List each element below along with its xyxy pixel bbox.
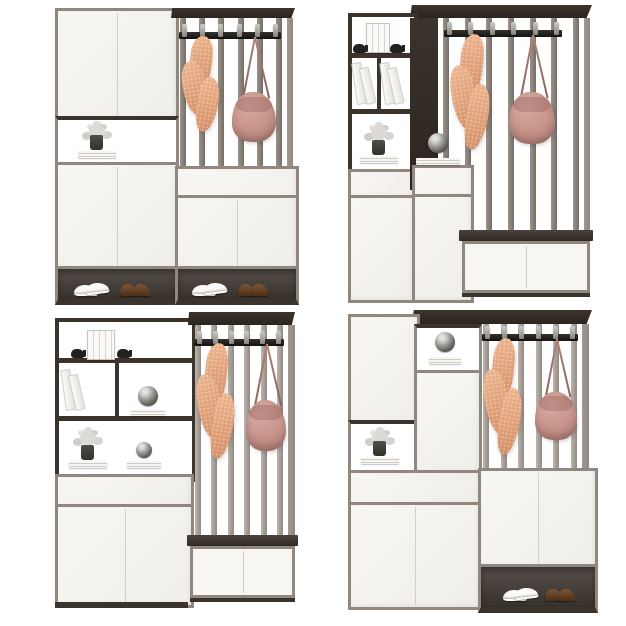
left-tall-door	[348, 195, 416, 303]
book-stack	[127, 461, 161, 468]
bag-flap	[249, 405, 282, 420]
open-shoe-shelf	[175, 266, 299, 305]
door-seam	[526, 246, 527, 288]
rack-side-frame	[584, 18, 590, 230]
flower-vase	[76, 116, 118, 158]
hanging-coat	[183, 36, 223, 134]
right-two-door-cabinet	[478, 468, 598, 570]
bag-strap	[253, 344, 268, 409]
bag-strap	[556, 339, 572, 398]
book-stack	[416, 158, 460, 165]
product-image-canvas	[0, 0, 626, 626]
hanging-coat	[485, 338, 525, 458]
white-sneakers	[503, 588, 539, 601]
bench-base	[190, 598, 295, 602]
book-stack	[69, 461, 107, 468]
shelf-divider	[115, 363, 119, 416]
two-door-cabinet	[55, 504, 194, 608]
drawer-seam	[178, 195, 296, 198]
lower-two-door-cabinet	[55, 162, 179, 272]
shelf-divider	[59, 416, 192, 421]
glass-orb-on-books	[129, 386, 167, 416]
book-stack	[131, 409, 165, 416]
hanging-bag	[243, 343, 289, 453]
door-seam	[415, 507, 416, 605]
flowers	[371, 126, 387, 140]
hall-tree-unit-top-left	[55, 8, 295, 296]
bag-strap	[532, 35, 549, 99]
vase	[372, 140, 385, 155]
sneaker	[202, 282, 227, 296]
leaning-books	[63, 368, 89, 412]
sneaker	[513, 587, 538, 601]
drawer-seam	[415, 194, 471, 197]
glass-orb	[428, 133, 448, 153]
coat-rack-top-panel	[188, 312, 295, 325]
rack-slat	[573, 18, 579, 230]
door-seam	[243, 551, 244, 593]
glass-orb-on-books	[125, 438, 163, 468]
upper-two-door-cabinet	[55, 8, 179, 122]
bag-strap	[254, 37, 270, 98]
hanging-bag	[229, 36, 279, 144]
book-stack	[360, 156, 398, 163]
brown-shoes	[238, 283, 270, 296]
bag-flap	[236, 97, 272, 112]
shelf-divider	[59, 358, 192, 363]
tall-door-middle	[414, 370, 482, 476]
glass-orb	[435, 332, 455, 352]
glass-orb-on-books	[414, 133, 462, 165]
flower-vase	[67, 422, 109, 468]
coat-rack-top-panel	[412, 310, 592, 324]
elephant-bookend	[71, 349, 84, 358]
hanging-bag	[506, 34, 558, 146]
coat-rack-top-panel	[410, 5, 592, 18]
glass-orb	[138, 386, 158, 406]
hall-tree-unit-top-right	[348, 5, 592, 300]
bench-doors	[462, 241, 590, 293]
white-sneakers	[192, 283, 228, 296]
elephant-bookend	[390, 44, 403, 53]
open-shoe-shelf	[478, 564, 598, 613]
bag-flap	[513, 97, 550, 113]
hanging-coat	[198, 343, 238, 461]
rack-side-frame	[287, 18, 293, 166]
elephant-bookend	[353, 44, 366, 53]
tall-door-upper-left	[348, 314, 420, 426]
bench-doors	[190, 546, 295, 598]
hall-tree-unit-bottom-right	[348, 310, 592, 610]
cabinet-base	[55, 602, 188, 608]
leaning-books	[382, 61, 403, 106]
rack-side-frame	[582, 324, 589, 468]
books	[87, 330, 115, 360]
elephant-bookend	[117, 349, 130, 358]
rack-side-frame	[288, 325, 295, 535]
book-stack	[361, 457, 399, 464]
door-seam	[237, 199, 238, 267]
white-sneakers	[74, 283, 110, 296]
vase	[81, 445, 94, 460]
glass-orb-on-books	[427, 332, 463, 364]
bench-top	[187, 535, 298, 546]
shoe-bench	[462, 230, 590, 297]
shoe	[558, 589, 575, 601]
door-seam	[117, 13, 118, 117]
leaning-books	[354, 61, 375, 106]
bench-top	[459, 230, 593, 241]
bag-strap	[266, 344, 282, 407]
hanging-bag	[532, 338, 580, 442]
open-shelving-column	[348, 13, 418, 177]
flower-vase	[358, 117, 400, 163]
shelf-divider	[352, 109, 414, 114]
coat-rack-top-panel	[171, 8, 295, 18]
book-stack	[78, 151, 116, 158]
shoe-bench	[190, 535, 295, 602]
books	[366, 23, 390, 53]
flower-vase	[359, 422, 401, 464]
door-seam	[125, 509, 126, 603]
bag-strap	[519, 35, 534, 101]
vase	[90, 135, 103, 150]
door-seam	[538, 473, 539, 565]
vase	[373, 441, 386, 456]
drawer-door-cabinet	[175, 166, 299, 272]
flowers	[80, 431, 96, 445]
open-shelving-hutch	[55, 318, 196, 482]
hall-tree-unit-bottom-left	[55, 312, 295, 608]
sneaker	[84, 282, 109, 296]
bench-base	[462, 293, 590, 297]
brown-shoes	[545, 588, 577, 601]
shoe	[251, 284, 268, 296]
glass-orb	[136, 442, 152, 458]
book-stack	[429, 357, 461, 364]
shoe	[133, 284, 150, 296]
bag-flap	[539, 396, 574, 411]
two-door-cabinet	[348, 502, 482, 610]
shelf-divider	[352, 53, 414, 58]
door-seam	[117, 167, 118, 267]
brown-shoes	[120, 283, 152, 296]
open-shoe-shelf	[55, 266, 179, 305]
